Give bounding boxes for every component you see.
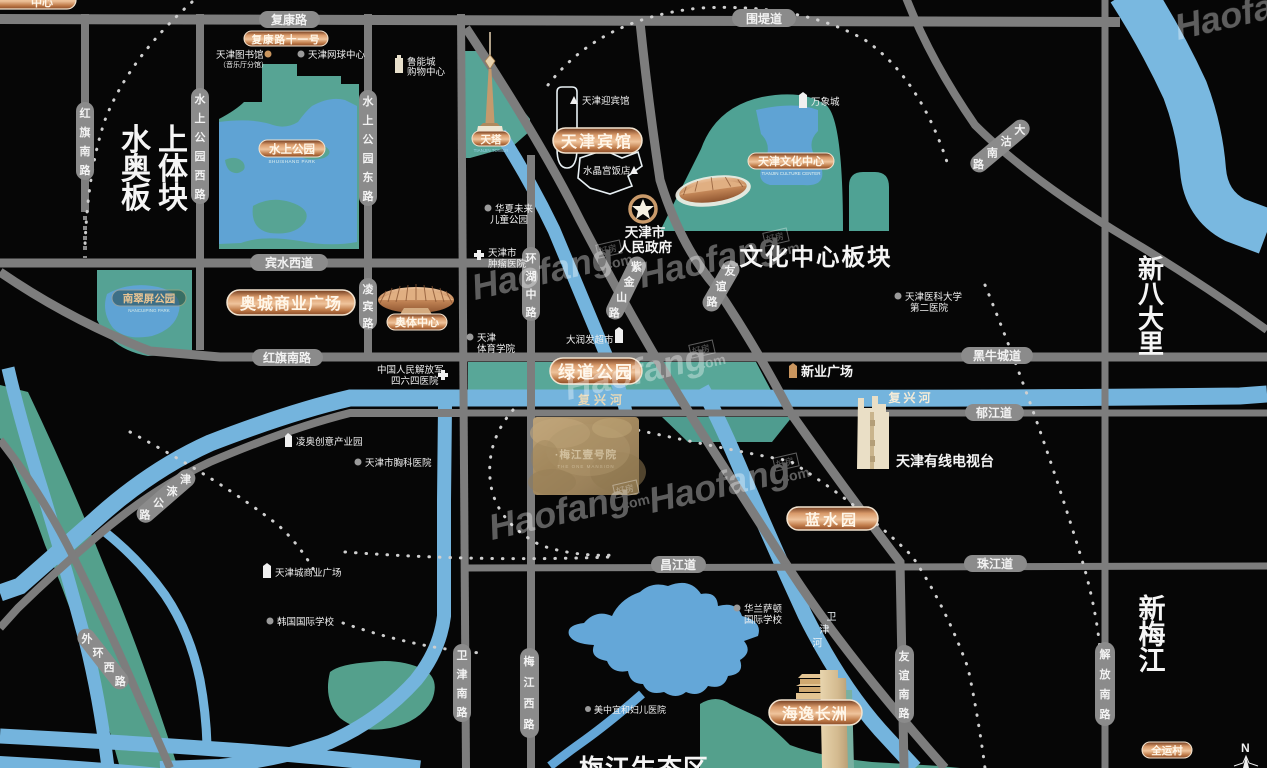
svg-text:南: 南	[1100, 687, 1111, 701]
svg-text:南: 南	[899, 687, 910, 701]
svg-text:·梅江壹号院: ·梅江壹号院	[555, 448, 617, 461]
svg-text:复康路十一号: 复康路十一号	[251, 33, 321, 46]
svg-text:红: 红	[80, 106, 91, 120]
svg-text:谊: 谊	[899, 668, 910, 682]
svg-text:体育学院: 体育学院	[477, 343, 516, 355]
svg-text:全运村: 全运村	[1150, 744, 1183, 757]
svg-text:天津有线电视台: 天津有线电视台	[896, 453, 994, 469]
svg-text:奥城商业广场: 奥城商业广场	[240, 294, 342, 313]
svg-text:西: 西	[195, 169, 206, 182]
svg-text:宾: 宾	[363, 299, 374, 313]
svg-text:路: 路	[195, 187, 207, 201]
svg-text:谊: 谊	[716, 279, 727, 293]
svg-text:奥体: 奥体	[121, 152, 195, 186]
svg-text:公: 公	[153, 497, 164, 510]
svg-text:凌: 凌	[363, 282, 375, 296]
svg-text:路: 路	[363, 189, 375, 203]
svg-text:淶: 淶	[167, 484, 179, 498]
svg-text:山: 山	[616, 290, 627, 304]
svg-text:东: 东	[363, 170, 374, 184]
svg-text:华兰萨顿: 华兰萨顿	[744, 603, 783, 615]
svg-text:围堤道: 围堤道	[746, 11, 782, 26]
svg-text:蓝水园: 蓝水园	[805, 511, 859, 529]
svg-text:宾水西道: 宾水西道	[265, 255, 313, 270]
svg-text:红旗南路: 红旗南路	[263, 350, 312, 365]
svg-text:大润发超市: 大润发超市	[566, 334, 614, 346]
svg-text:韩国国际学校: 韩国国际学校	[277, 616, 335, 628]
svg-text:路: 路	[115, 674, 127, 688]
svg-text:路: 路	[973, 157, 985, 171]
svg-text:THE ONE MANSION: THE ONE MANSION	[557, 464, 614, 469]
svg-text:第二医院: 第二医院	[910, 302, 949, 314]
svg-text:金: 金	[623, 275, 636, 289]
svg-text:新业广场: 新业广场	[801, 364, 853, 379]
svg-text:路: 路	[80, 163, 92, 177]
svg-text:郁江道: 郁江道	[975, 405, 1012, 420]
svg-text:里: 里	[1138, 329, 1164, 359]
svg-text:路: 路	[526, 305, 538, 319]
svg-text:NANCUIPING PARK: NANCUIPING PARK	[128, 308, 169, 313]
svg-text:华夏未来: 华夏未来	[495, 203, 534, 215]
svg-text:天津城商业广场: 天津城商业广场	[275, 567, 342, 579]
svg-text:海逸长洲: 海逸长洲	[782, 704, 848, 723]
svg-text:水: 水	[195, 92, 207, 106]
svg-text:板块: 板块	[121, 182, 195, 215]
svg-text:珠江道: 珠江道	[977, 556, 1013, 571]
svg-text:江: 江	[1139, 646, 1166, 676]
svg-text:卫: 卫	[827, 612, 837, 623]
svg-text:路: 路	[1100, 707, 1112, 721]
svg-text:天津市胸科医院: 天津市胸科医院	[365, 457, 432, 469]
svg-text:江: 江	[524, 675, 535, 689]
svg-text:TIANJIN TOWER: TIANJIN TOWER	[474, 148, 510, 153]
svg-text:梅: 梅	[524, 654, 535, 668]
svg-text:公: 公	[195, 131, 206, 144]
svg-text:国际学校: 国际学校	[744, 614, 783, 626]
svg-text:南: 南	[457, 686, 468, 700]
svg-text:凌奥创意产业园: 凌奥创意产业园	[296, 436, 363, 448]
svg-text:路: 路	[609, 305, 621, 319]
svg-text:沽: 沽	[1001, 134, 1012, 148]
svg-text:天津宾馆: 天津宾馆	[561, 132, 633, 151]
svg-text:万象城: 万象城	[811, 96, 840, 108]
svg-text:津: 津	[457, 667, 468, 681]
svg-text:天津文化中心: 天津文化中心	[758, 154, 824, 168]
svg-text:路: 路	[363, 316, 375, 330]
svg-text:路: 路	[899, 706, 911, 720]
svg-text:河: 河	[812, 637, 822, 649]
svg-text:友: 友	[899, 649, 910, 663]
svg-text:旗: 旗	[80, 125, 91, 139]
svg-text:南: 南	[80, 144, 91, 158]
svg-text:南: 南	[987, 145, 998, 159]
svg-text:天塔: 天塔	[481, 133, 502, 146]
svg-text:黑牛城道: 黑牛城道	[973, 348, 1021, 363]
svg-text:复康路: 复康路	[270, 12, 308, 27]
svg-text:（音乐厅分馆）: （音乐厅分馆）	[219, 60, 268, 69]
svg-text:美中宜和妇儿医院: 美中宜和妇儿医院	[594, 704, 666, 715]
svg-text:N: N	[1241, 741, 1250, 755]
svg-text:上: 上	[363, 113, 374, 127]
svg-text:天津网球中心: 天津网球中心	[308, 49, 366, 61]
svg-text:奥体中心: 奥体中心	[394, 315, 439, 329]
svg-text:SHUISHANG PARK: SHUISHANG PARK	[269, 159, 316, 164]
svg-text:复兴河: 复兴河	[887, 390, 933, 405]
svg-text:大: 大	[1014, 122, 1025, 136]
svg-text:园: 园	[195, 150, 206, 163]
svg-text:中心: 中心	[31, 0, 53, 9]
svg-text:放: 放	[1099, 667, 1112, 681]
svg-text:水晶宫饭店: 水晶宫饭店	[583, 165, 631, 177]
svg-text:天津: 天津	[477, 333, 497, 344]
svg-text:路: 路	[457, 705, 469, 719]
svg-text:津: 津	[819, 624, 829, 636]
svg-text:梅江生态区: 梅江生态区	[579, 754, 709, 768]
svg-text:外: 外	[80, 632, 92, 646]
svg-text:水上公园: 水上公园	[269, 142, 315, 156]
svg-text:儿童公园: 儿童公园	[490, 214, 528, 226]
svg-text:园: 园	[363, 152, 374, 165]
svg-text:昌江道: 昌江道	[660, 557, 696, 572]
svg-text:津: 津	[180, 472, 191, 486]
svg-text:四六四医院: 四六四医院	[391, 375, 439, 387]
svg-text:天津迎宾馆: 天津迎宾馆	[582, 95, 630, 107]
svg-text:购物中心: 购物中心	[407, 66, 446, 78]
svg-text:TIANJIN CULTURE CENTER: TIANJIN CULTURE CENTER	[762, 171, 822, 176]
svg-text:路: 路	[139, 507, 151, 521]
svg-text:西: 西	[104, 661, 115, 674]
svg-text:水: 水	[363, 94, 375, 108]
svg-text:天津医科大学: 天津医科大学	[905, 291, 962, 303]
svg-text:公: 公	[363, 133, 374, 146]
svg-text:南翠屏公园: 南翠屏公园	[123, 292, 176, 305]
svg-text:卫: 卫	[457, 649, 468, 662]
svg-text:路: 路	[524, 717, 536, 731]
svg-text:天津市: 天津市	[625, 224, 666, 240]
svg-text:解: 解	[1100, 647, 1111, 661]
svg-text:西: 西	[524, 697, 535, 710]
svg-text:天津图书馆: 天津图书馆	[216, 49, 264, 61]
svg-text:中国人民解放军: 中国人民解放军	[377, 364, 444, 376]
svg-text:上: 上	[195, 111, 206, 125]
svg-text:环: 环	[93, 647, 104, 660]
svg-text:路: 路	[707, 295, 719, 309]
